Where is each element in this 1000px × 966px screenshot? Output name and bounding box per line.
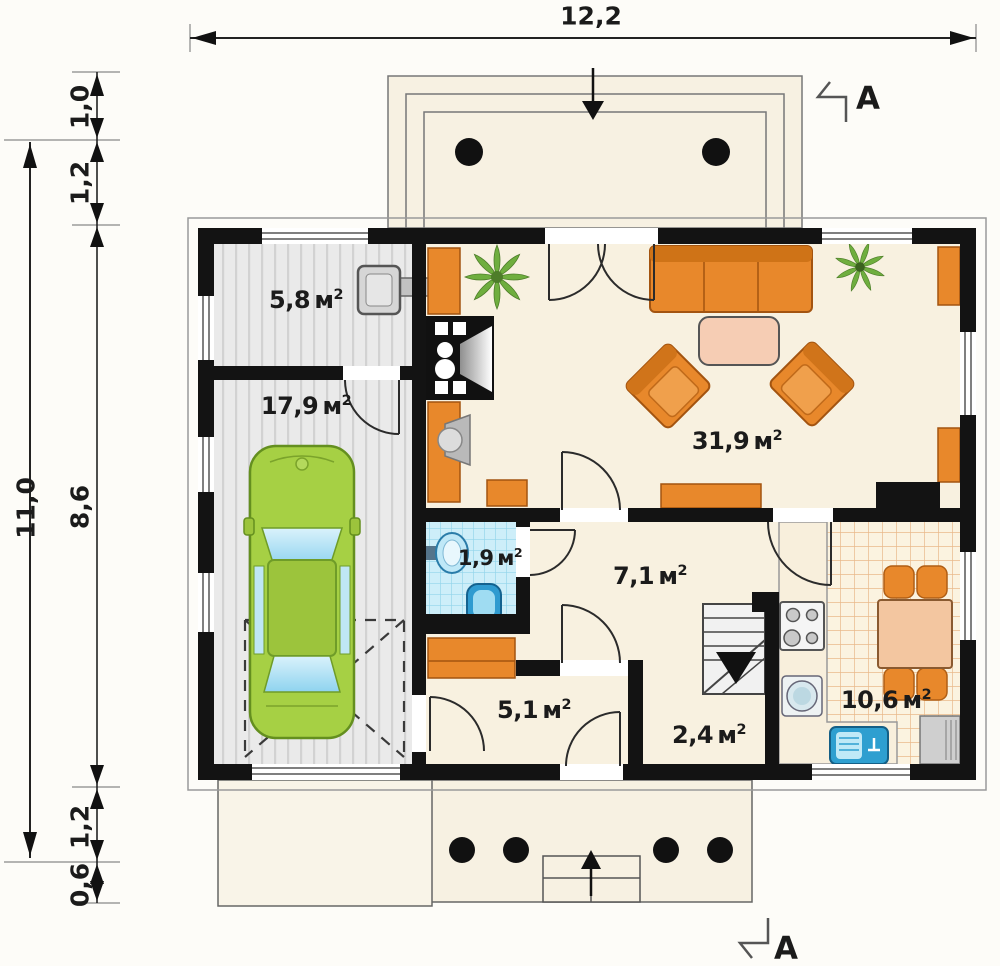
- window: [960, 332, 976, 415]
- section-marker-label: A: [774, 934, 798, 965]
- dimension-segment: 1,2: [68, 805, 93, 849]
- window: [262, 228, 368, 244]
- chair: [884, 566, 914, 598]
- plant: [465, 245, 529, 309]
- room-label-stair-hall: 2,4 м2: [672, 723, 746, 747]
- dimension-segment: 0,6: [68, 863, 93, 907]
- coffee-table: [699, 317, 779, 365]
- floor-plan-drawing: [0, 0, 1000, 966]
- window: [960, 552, 976, 640]
- window: [198, 296, 214, 360]
- column: [707, 837, 733, 863]
- kitchen-sink: [830, 727, 888, 764]
- garage-door: [245, 764, 407, 780]
- room-label-garage: 17,9 м2: [261, 394, 351, 418]
- terrace: [388, 68, 802, 228]
- wardrobe: [428, 638, 515, 678]
- stove: [780, 602, 824, 650]
- wall-cabinet: [938, 428, 960, 482]
- column: [449, 837, 475, 863]
- fridge: [920, 716, 960, 764]
- wall-cabinet: [938, 247, 960, 305]
- room-label-utility: 5,8 м2: [269, 288, 343, 312]
- dimension-segment: 1,2: [68, 161, 93, 205]
- dimension-segment: 8,6: [68, 485, 93, 529]
- driveway: [218, 780, 432, 906]
- window: [822, 228, 912, 244]
- room-label-living-room: 31,9 м2: [692, 429, 782, 453]
- window: [198, 437, 214, 492]
- room-label-kitchen: 10,6 м2: [841, 688, 931, 712]
- window: [812, 764, 910, 780]
- room-label-bathroom: 1,9 м2: [458, 547, 522, 569]
- dimension-segment: 1,0: [68, 85, 93, 129]
- washing-machine: [782, 676, 822, 716]
- column: [653, 837, 679, 863]
- section-marker-label: A: [856, 84, 880, 115]
- dimension-total-height: 11,0: [14, 477, 39, 539]
- column: [702, 138, 730, 166]
- room-label-hall: 7,1 м2: [613, 564, 687, 588]
- dimension-total-width: 12,2: [560, 4, 622, 29]
- sofa: [650, 246, 812, 312]
- chair: [917, 566, 947, 598]
- window: [198, 573, 214, 632]
- sideboard: [661, 484, 761, 508]
- back-porch: [428, 780, 752, 902]
- cabinet: [487, 480, 527, 506]
- column: [503, 837, 529, 863]
- stairs: [703, 604, 765, 694]
- column: [455, 138, 483, 166]
- room-label-vestibule: 5,1 м2: [497, 698, 571, 722]
- floor-plan-page: 12,2 11,0 1,0 1,2 8,6 1,2 0,6 A A 5,8 м2…: [0, 0, 1000, 966]
- car: [244, 446, 360, 738]
